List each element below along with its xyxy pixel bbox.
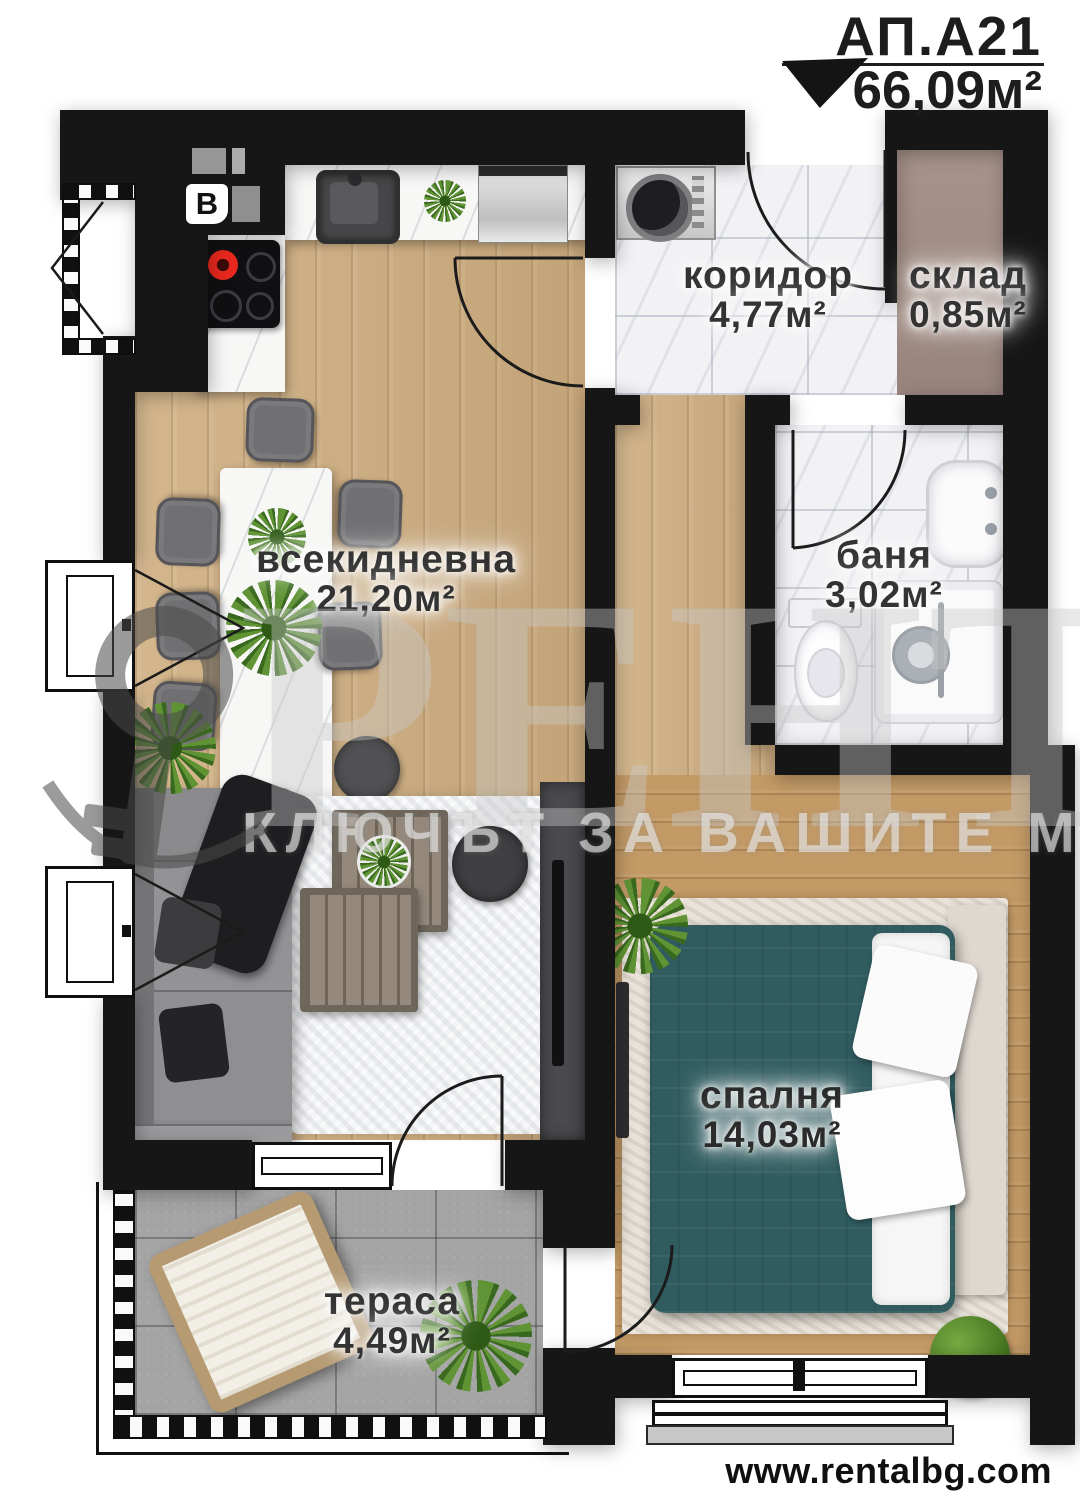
terrace-window (252, 1142, 392, 1190)
apartment-total-area: 66,09м² (853, 60, 1043, 121)
window (45, 560, 135, 692)
panel-box (192, 148, 226, 174)
label-living: всекидневна 21,20м² (256, 540, 516, 618)
wall (905, 395, 1003, 425)
wall (103, 336, 135, 562)
room-area: 3,02м² (825, 576, 943, 614)
room-name: коридор (683, 256, 853, 296)
wall (1003, 110, 1048, 748)
window (45, 866, 135, 998)
wall-storage-partition (885, 148, 897, 303)
room-name: тераса (324, 1282, 460, 1322)
label-bedroom: спалня 14,03м² (700, 1076, 844, 1154)
wall (103, 996, 135, 1190)
label-corridor: коридор 4,77м² (683, 256, 853, 334)
wall (135, 235, 208, 392)
boiler-box (232, 186, 260, 222)
wall (745, 425, 775, 745)
panel-box-small (232, 148, 245, 174)
wall (1030, 745, 1075, 1445)
wall (928, 1355, 1073, 1398)
wall (745, 395, 790, 425)
terrace-railing-left (113, 1190, 135, 1439)
bedroom-window (672, 1358, 928, 1398)
wall (103, 690, 135, 868)
boiler-label: B (196, 186, 218, 221)
label-bath: баня 3,02м² (825, 536, 943, 614)
window-frame (66, 881, 114, 983)
window-frame (261, 1157, 383, 1175)
website-link[interactable]: www.rentalbg.com (725, 1450, 1052, 1492)
room-name: баня (825, 536, 943, 576)
room-name: спалня (700, 1076, 844, 1116)
room-area: 14,03м² (700, 1116, 844, 1154)
label-storage: склад 0,85м² (909, 256, 1027, 334)
french-balcony-base (646, 1425, 954, 1445)
room-area: 0,85м² (909, 296, 1027, 334)
room-name: склад (909, 256, 1027, 296)
balcony-railing (62, 183, 80, 355)
room-area: 21,20м² (256, 580, 516, 618)
room-name: всекидневна (256, 540, 516, 580)
room-area: 4,49м² (324, 1322, 460, 1360)
label-terrace: тераса 4,49м² (324, 1282, 460, 1360)
room-area: 4,77м² (683, 296, 853, 334)
balcony-railing (62, 338, 136, 355)
wall (585, 388, 615, 1140)
wall (615, 1355, 672, 1398)
floorplan-canvas: B (0, 0, 1080, 1498)
window-handle (122, 925, 131, 937)
boiler-marker: B (186, 184, 228, 224)
window-handle (122, 619, 131, 631)
terrace-railing-bottom (113, 1415, 547, 1439)
wall (775, 745, 1033, 775)
window-mullion (793, 1361, 805, 1391)
balcony-railing (62, 183, 136, 200)
window-frame (66, 575, 114, 677)
wall (585, 165, 615, 258)
wall (615, 395, 640, 425)
